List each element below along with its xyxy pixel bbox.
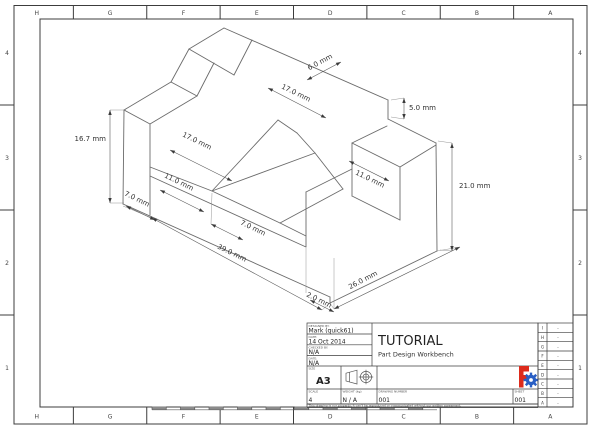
sheet-value: 001 — [515, 397, 527, 404]
dimension-arrowhead — [160, 190, 165, 194]
dimension: 21.0 mm — [450, 143, 490, 251]
revision-letter: D — [541, 372, 544, 377]
border-letter-top: F — [182, 10, 186, 17]
projection-symbol-icon — [346, 370, 373, 384]
drawing-subtitle: Part Design Workbench — [378, 351, 454, 359]
dimension-text: 39.0 mm — [216, 243, 248, 264]
revision-value: - — [557, 354, 559, 359]
dimension-arrowhead — [402, 98, 405, 103]
border-letter-top: C — [401, 10, 405, 17]
dimension-text: 16.7 mm — [75, 135, 107, 143]
disclaimer-text: This drawing is our property; it can't b… — [308, 404, 462, 408]
dimension-arrowhead — [450, 143, 453, 148]
part-edge — [280, 223, 306, 236]
extension-line — [391, 98, 404, 100]
dimension-text: 7.0 mm — [239, 219, 267, 238]
drawing-title: TUTORIAL — [377, 334, 443, 349]
part-edge — [189, 49, 234, 75]
extension-line — [391, 117, 404, 119]
border-letter-top: G — [108, 10, 113, 17]
revision-letter: B — [541, 391, 544, 396]
part-edge — [436, 143, 437, 251]
revision-letter: C — [541, 382, 544, 387]
dimension-arrowhead — [227, 177, 232, 181]
border-letter-bottom: A — [548, 414, 553, 421]
revision-value: - — [557, 363, 559, 368]
sheet-label: SHEET — [515, 389, 525, 393]
part-edge — [224, 28, 388, 100]
part-edge — [123, 110, 124, 204]
dimension: 5.0 mm — [402, 98, 436, 119]
dimension-text: 5.0 mm — [409, 104, 436, 112]
part-edge — [124, 82, 171, 110]
part-edge — [278, 120, 297, 133]
dimension-arrowhead — [108, 198, 111, 203]
border-letter-top: E — [255, 10, 259, 17]
border-letter-top: A — [548, 10, 553, 17]
ruler-segment — [295, 407, 309, 410]
revision-letter: I — [542, 326, 543, 331]
revision-value: - — [557, 400, 559, 405]
border-letter-top: H — [34, 10, 39, 17]
size-value: A3 — [316, 376, 331, 387]
border-number-right: 3 — [578, 155, 582, 162]
dimension-text: 21.0 mm — [459, 182, 491, 190]
ruler-segment — [209, 407, 223, 410]
revision-letter: E — [541, 363, 544, 368]
dimension-arrowhead — [334, 305, 339, 309]
part-edge — [212, 120, 278, 191]
dimension-text: 6.0 mm — [306, 52, 334, 72]
revision-value: - — [557, 344, 559, 349]
checked-by-value: N/A — [309, 349, 321, 356]
dimension: 26.0 mm — [334, 247, 460, 309]
dimension-arrowhead — [170, 150, 175, 154]
part-edge — [234, 40, 252, 75]
part-edge — [171, 82, 197, 96]
dimension: 39.0 mm — [152, 218, 322, 310]
revision-value: - — [557, 382, 559, 387]
dimension: 16.7 mm — [75, 110, 112, 203]
border-letter-bottom: B — [475, 414, 479, 421]
ruler-segment — [152, 407, 166, 410]
scale-label: SCALE — [309, 389, 319, 393]
part-edge — [400, 145, 436, 167]
part-edge — [280, 189, 343, 223]
border-letter-bottom: H — [34, 414, 39, 421]
freecad-logo-gear-hole — [529, 378, 533, 382]
border-number-left: 3 — [5, 155, 9, 162]
outer-border — [14, 6, 587, 425]
dimension-line — [160, 190, 204, 212]
dimension: 17.0 mm — [268, 83, 326, 118]
border-letter-bottom: D — [328, 414, 333, 421]
revision-value: - — [557, 326, 559, 331]
drawing-page: HHGGFFEEDDCCBBAA44332211 16.7 mm7.0 mm17… — [0, 0, 600, 431]
border-letter-bottom: F — [182, 414, 186, 421]
dimension-text: 17.0 mm — [181, 131, 213, 152]
part-edge — [352, 126, 387, 143]
revision-value: - — [557, 372, 559, 377]
border-letter-bottom: G — [108, 414, 113, 421]
part-edge — [212, 191, 280, 223]
dimension-line — [152, 218, 322, 310]
border-letter-bottom: C — [401, 414, 405, 421]
border-number-left: 4 — [5, 50, 9, 57]
ruler-segment — [266, 407, 280, 410]
border-number-left: 1 — [5, 365, 9, 372]
border-number-right: 1 — [578, 365, 582, 372]
dimension-line — [211, 224, 243, 240]
border-letter-top: D — [328, 10, 333, 17]
inner-frame — [40, 19, 573, 407]
drawing-number-label: DRAWING NUMBER — [379, 389, 408, 393]
part-edge — [124, 110, 150, 124]
dimension-arrowhead — [108, 110, 111, 115]
part-edge — [150, 96, 197, 124]
part-edge — [212, 153, 315, 191]
part-edge — [189, 28, 224, 49]
revision-letter: F — [541, 354, 544, 359]
freecad-logo — [519, 366, 538, 388]
dimension-arrowhead — [238, 236, 243, 240]
border-letter-bottom: E — [255, 414, 259, 421]
revision-letter: H — [541, 335, 544, 340]
dimension: 11.0 mm — [349, 161, 389, 190]
dimension-arrowhead — [211, 224, 216, 228]
revision-table: I-H-G-F-E-D-C-B-A- — [538, 323, 573, 407]
extension-line — [438, 141, 452, 143]
border-number-right: 2 — [578, 260, 582, 267]
part-edge — [197, 63, 214, 96]
revision-letter: G — [541, 344, 544, 349]
extension-line — [211, 193, 212, 224]
dimension-line — [334, 247, 460, 309]
dimension-text: 26.0 mm — [347, 269, 379, 291]
dimension-arrowhead — [384, 177, 389, 181]
part-edge — [150, 176, 306, 247]
dimension: 11.0 mm — [160, 172, 204, 212]
dimension-arrowhead — [336, 62, 341, 66]
dimension: 7.0 mm — [211, 219, 267, 240]
ruler-segment — [181, 407, 195, 410]
dimension-text: 11.0 mm — [354, 169, 386, 190]
weight-label: WEIGHT (kg) — [343, 389, 362, 393]
dimension-arrowhead — [402, 114, 405, 119]
part-edge — [352, 143, 400, 167]
dimension-text: 17.0 mm — [280, 83, 312, 104]
part-edge — [330, 251, 437, 303]
part-edge — [352, 196, 400, 220]
drawing-sheet: HHGGFFEEDDCCBBAA44332211 16.7 mm7.0 mm17… — [0, 0, 600, 431]
border-number-right: 4 — [578, 50, 582, 57]
size-label: SIZE — [309, 367, 316, 371]
dimension-arrowhead — [268, 88, 273, 92]
dimension: 6.0 mm — [306, 52, 341, 80]
dimension-arrowhead — [321, 114, 326, 118]
dimension-annotations: 16.7 mm7.0 mm17.0 mm11.0 mm17.0 mm6.0 mm… — [75, 52, 491, 312]
revision-letter: A — [541, 400, 544, 405]
revision-value: - — [557, 335, 559, 340]
title-block: DESIGNED BY: Mark (quick61) DATE: 14 Oct… — [307, 323, 573, 408]
part-edge — [388, 119, 436, 143]
border-letter-top: B — [475, 10, 479, 17]
part-edge — [297, 133, 315, 153]
border-grid-marks — [0, 6, 587, 425]
part-edge — [171, 49, 189, 82]
dimension-arrowhead — [317, 306, 322, 310]
dimension-arrowhead — [199, 208, 204, 212]
dimension: 17.0 mm — [170, 131, 232, 181]
dimension-line — [170, 150, 232, 181]
part-edge — [306, 169, 352, 192]
border-number-left: 2 — [5, 260, 9, 267]
part-edge — [315, 153, 343, 189]
date-value: 14 Oct 2014 — [309, 338, 346, 345]
ruler-segment — [238, 407, 252, 410]
designed-by-value: Mark (quick61) — [309, 328, 354, 335]
revision-value: - — [557, 391, 559, 396]
isometric-part-view — [123, 28, 437, 303]
dimension-arrowhead — [307, 76, 312, 80]
